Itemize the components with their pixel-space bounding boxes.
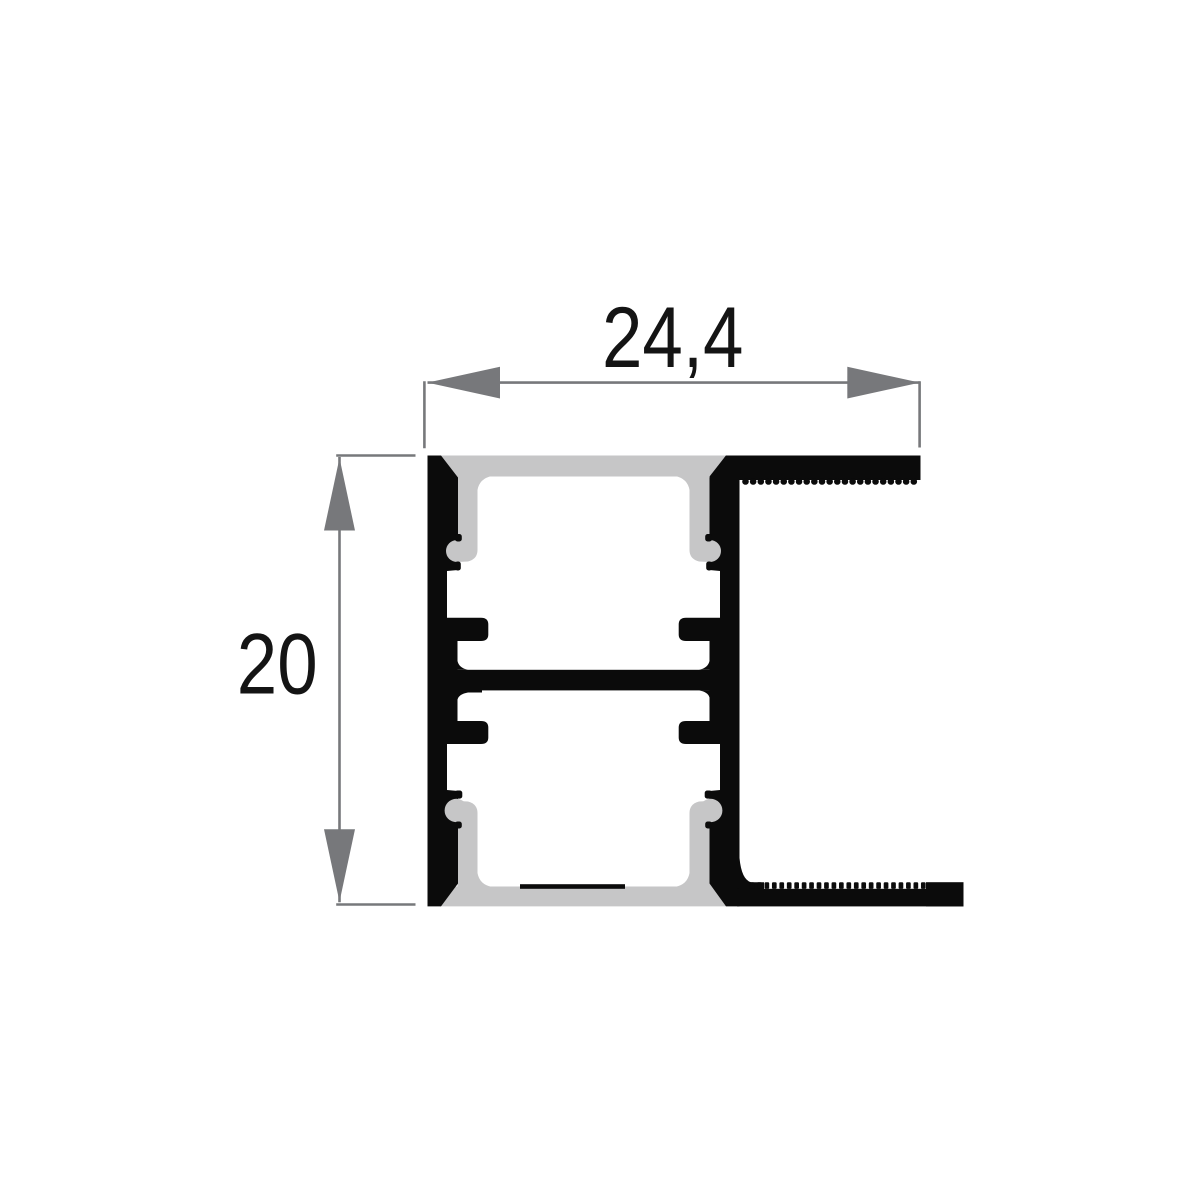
svg-text:24,4: 24,4 xyxy=(602,289,743,385)
svg-text:20: 20 xyxy=(237,616,318,712)
